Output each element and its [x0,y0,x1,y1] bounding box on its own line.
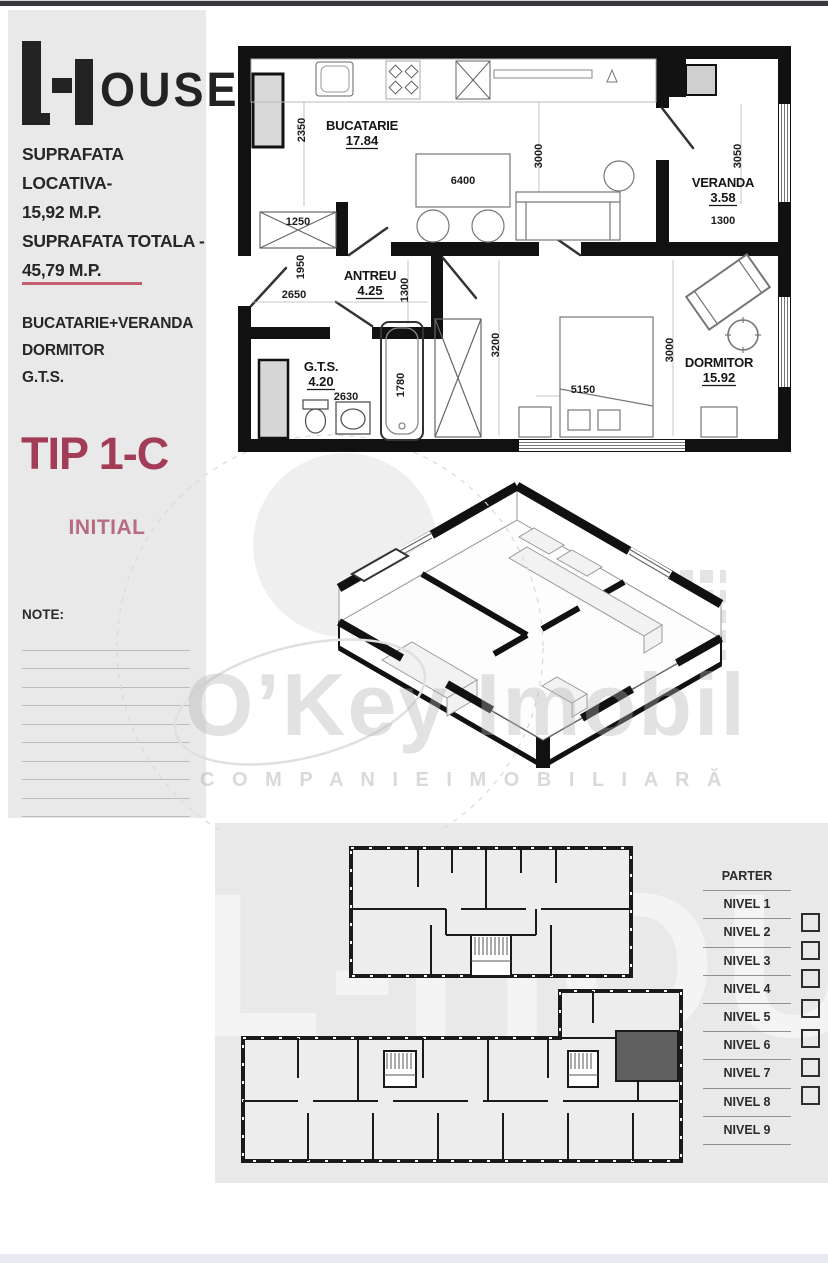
dim-3200: 3200 [490,333,502,357]
logo-text: OUSE [100,65,240,114]
bedroom-furniture [519,254,770,437]
level-row-nivel-8: NIVEL 8 [703,1089,791,1117]
room-label-bucatarie: BUCATARIE [326,118,399,133]
staircase-icon [568,1051,598,1087]
sofa-icon [516,192,620,240]
level-row-parter: PARTER [703,863,791,891]
area-summary: SUPRAFATA LOCATIVA- 15,92 M.P. SUPRAFATA… [22,140,206,285]
level-checkbox[interactable] [801,913,820,932]
level-row-nivel-3: NIVEL 3 [703,948,791,976]
level-row-nivel-4: NIVEL 4 [703,976,791,1004]
dim-1250: 1250 [286,216,310,228]
nightstand-icon [701,407,737,437]
level-checkbox[interactable] [801,941,820,960]
level-checkbox[interactable] [801,1058,820,1077]
level-row-nivel-2: NIVEL 2 [703,919,791,947]
rooms-summary-line: DORMITOR [22,337,193,364]
level-checkbox[interactable] [801,969,820,988]
note-line [22,799,190,818]
highlighted-unit [616,1031,678,1081]
round-table-icon [604,161,634,191]
shaft [686,65,716,95]
level-row-nivel-9: NIVEL 9 [703,1117,791,1145]
building-plan-lower [238,983,688,1173]
floor-plan: BUCATARIE 17.84 ANTREU 4.25 G.T.S. 4.20 … [236,44,796,454]
room-area-veranda: 3.58 [710,190,735,205]
note-lines [22,632,190,817]
logo-l-glyph [22,41,41,125]
dim-2650: 2650 [282,289,306,301]
chair-icon [417,210,449,242]
note-line [22,632,190,651]
page: { "sidebar": { "logo": { "name": "L-Hous… [0,0,828,1263]
note-label: NOTE: [22,607,64,622]
area-line: 45,79 M.P. [22,256,206,285]
dim-1300-veranda: 1300 [711,215,735,227]
apartment-type-title: TIP 1-C [21,428,168,480]
room-area-dormitor: 15.92 [703,370,736,385]
note-line [22,725,190,744]
bed-icon [560,317,653,437]
room-label-gts: G.T.S. [304,359,338,374]
bottom-strip [0,1254,828,1263]
level-row-nivel-1: NIVEL 1 [703,891,791,919]
isometric-view [272,462,742,807]
level-row-nivel-7: NIVEL 7 [703,1060,791,1088]
dim-3050: 3050 [732,144,744,168]
dim-2630: 2630 [334,391,358,403]
bath-sink-icon [336,402,370,434]
staircase-icon [384,1051,416,1087]
dim-3000-dormitor: 3000 [664,338,676,362]
fridge-icon [253,74,283,147]
dim-1780: 1780 [395,373,407,397]
area-line: 15,92 M.P. [22,198,206,227]
note-line [22,706,190,725]
status-label: INITIAL [8,516,206,540]
level-row-nivel-5: NIVEL 5 [703,1004,791,1032]
dim-5150: 5150 [571,384,595,396]
area-line: SUPRAFATA TOTALA - [22,227,206,256]
dim-1300-antreu: 1300 [399,278,411,302]
room-area-gts: 4.20 [308,374,333,389]
living-furniture [416,154,634,242]
room-area-antreu: 4.25 [357,283,382,298]
logo-h-glyph [75,59,93,125]
accent-divider [22,282,142,285]
small-table-icon [725,317,761,353]
level-checkbox[interactable] [801,999,820,1018]
note-line [22,780,190,799]
dim-1950: 1950 [295,255,307,279]
staircase-icon [471,935,511,976]
level-row-nivel-6: NIVEL 6 [703,1032,791,1060]
dim-3000-kitchen: 3000 [533,144,545,168]
note-line [22,762,190,781]
nightstand-icon [519,407,551,437]
room-label-veranda: VERANDA [692,175,755,190]
rooms-summary-line: BUCATARIE+VERANDA [22,310,193,337]
rooms-summary-line: G.T.S. [22,364,193,391]
toilet-icon [303,400,328,433]
top-bar [0,0,828,6]
dim-6400: 6400 [451,175,475,187]
dimension-labels: 2350 6400 1250 1950 2650 1300 2630 1780 … [282,118,744,403]
levels-list: PARTERNIVEL 1NIVEL 2NIVEL 3NIVEL 4NIVEL … [703,863,791,1145]
note-line [22,743,190,762]
building-section: L-HOUSE [215,823,828,1183]
chaise-icon [686,254,770,329]
room-label-dormitor: DORMITOR [685,355,754,370]
building-plan-upper [346,843,636,983]
washer-icon [259,360,288,438]
logo-hyphen-glyph [52,78,72,93]
note-line [22,669,190,688]
kitchen-fixtures [251,59,656,147]
note-line [22,651,190,670]
sidebar: OUSE SUPRAFATA LOCATIVA- 15,92 M.P. SUPR… [8,10,206,818]
lhouse-logo: OUSE [22,30,240,125]
walls [238,46,791,452]
wardrobe-icon [435,319,481,437]
dim-2350: 2350 [296,118,308,142]
rooms-summary: BUCATARIE+VERANDA DORMITOR G.T.S. [22,310,193,391]
chair-icon [472,210,504,242]
level-checkbox[interactable] [801,1029,820,1048]
room-label-antreu: ANTREU [344,268,396,283]
doors [251,108,693,326]
level-checkbox[interactable] [801,1086,820,1105]
area-line: SUPRAFATA LOCATIVA- [22,140,206,198]
room-area-bucatarie: 17.84 [346,133,379,148]
note-line [22,688,190,707]
